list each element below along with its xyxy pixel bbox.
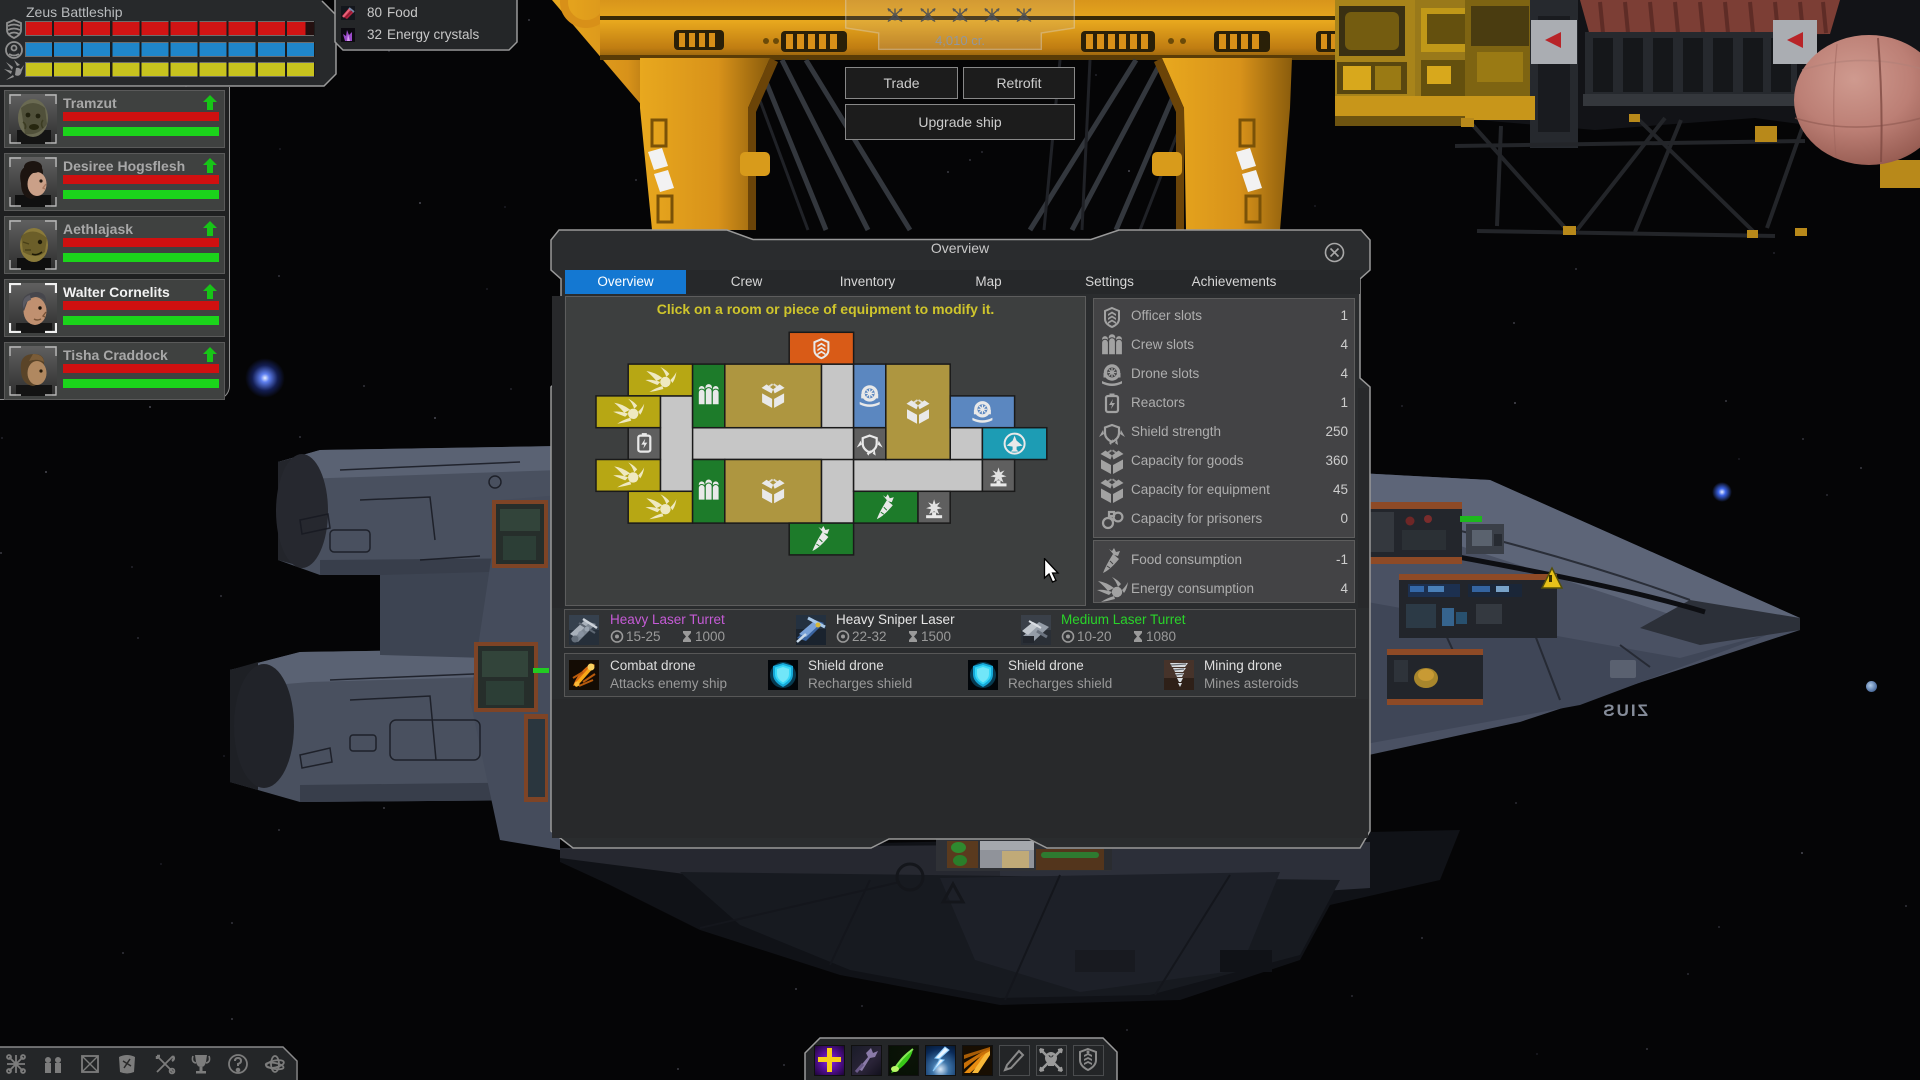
- svg-text:10-20: 10-20: [1077, 629, 1112, 644]
- svg-text:15-25: 15-25: [626, 629, 661, 644]
- svg-text:22-32: 22-32: [852, 629, 887, 644]
- svg-text:1500: 1500: [921, 629, 951, 644]
- svg-text:1080: 1080: [1146, 629, 1176, 644]
- svg-text:1000: 1000: [695, 629, 725, 644]
- svg-text:ZIUS: ZIUS: [1601, 701, 1648, 720]
